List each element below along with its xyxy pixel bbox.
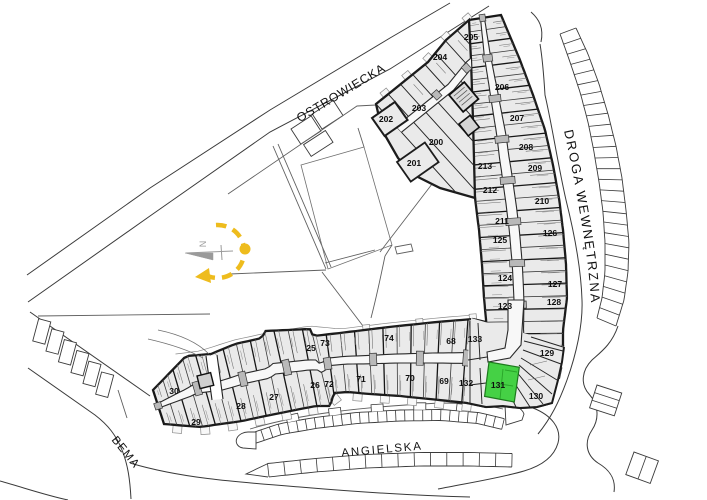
- svg-text:206: 206: [495, 82, 510, 92]
- svg-text:211: 211: [495, 216, 509, 226]
- svg-text:129: 129: [540, 348, 555, 358]
- svg-text:204: 204: [433, 52, 448, 62]
- svg-text:200: 200: [429, 137, 444, 147]
- svg-text:131: 131: [491, 380, 506, 390]
- svg-text:132: 132: [459, 378, 474, 388]
- svg-text:74: 74: [384, 333, 394, 343]
- svg-text:125: 125: [493, 235, 508, 245]
- svg-text:70: 70: [405, 373, 415, 383]
- svg-text:133: 133: [468, 334, 483, 344]
- svg-text:205: 205: [464, 32, 479, 42]
- svg-text:207: 207: [510, 113, 525, 123]
- svg-text:123: 123: [498, 301, 513, 311]
- svg-text:29: 29: [191, 417, 201, 427]
- svg-text:210: 210: [535, 196, 550, 206]
- svg-text:212: 212: [483, 185, 498, 195]
- svg-text:68: 68: [446, 336, 456, 346]
- svg-text:130: 130: [529, 391, 544, 401]
- svg-text:69: 69: [439, 376, 449, 386]
- svg-text:30: 30: [169, 386, 179, 396]
- svg-text:208: 208: [519, 142, 534, 152]
- svg-text:201: 201: [407, 158, 422, 168]
- svg-text:25: 25: [306, 343, 316, 353]
- svg-text:72: 72: [324, 379, 334, 389]
- svg-text:203: 203: [412, 103, 427, 113]
- svg-text:128: 128: [547, 297, 562, 307]
- svg-text:73: 73: [320, 338, 330, 348]
- svg-text:202: 202: [379, 114, 394, 124]
- svg-text:209: 209: [528, 163, 543, 173]
- svg-text:N: N: [198, 241, 208, 248]
- svg-text:71: 71: [356, 374, 366, 384]
- svg-text:126: 126: [543, 228, 558, 238]
- svg-text:127: 127: [548, 279, 563, 289]
- svg-text:27: 27: [269, 392, 279, 402]
- svg-text:124: 124: [498, 273, 513, 283]
- svg-text:26: 26: [310, 380, 320, 390]
- svg-text:213: 213: [478, 161, 493, 171]
- svg-text:28: 28: [236, 401, 246, 411]
